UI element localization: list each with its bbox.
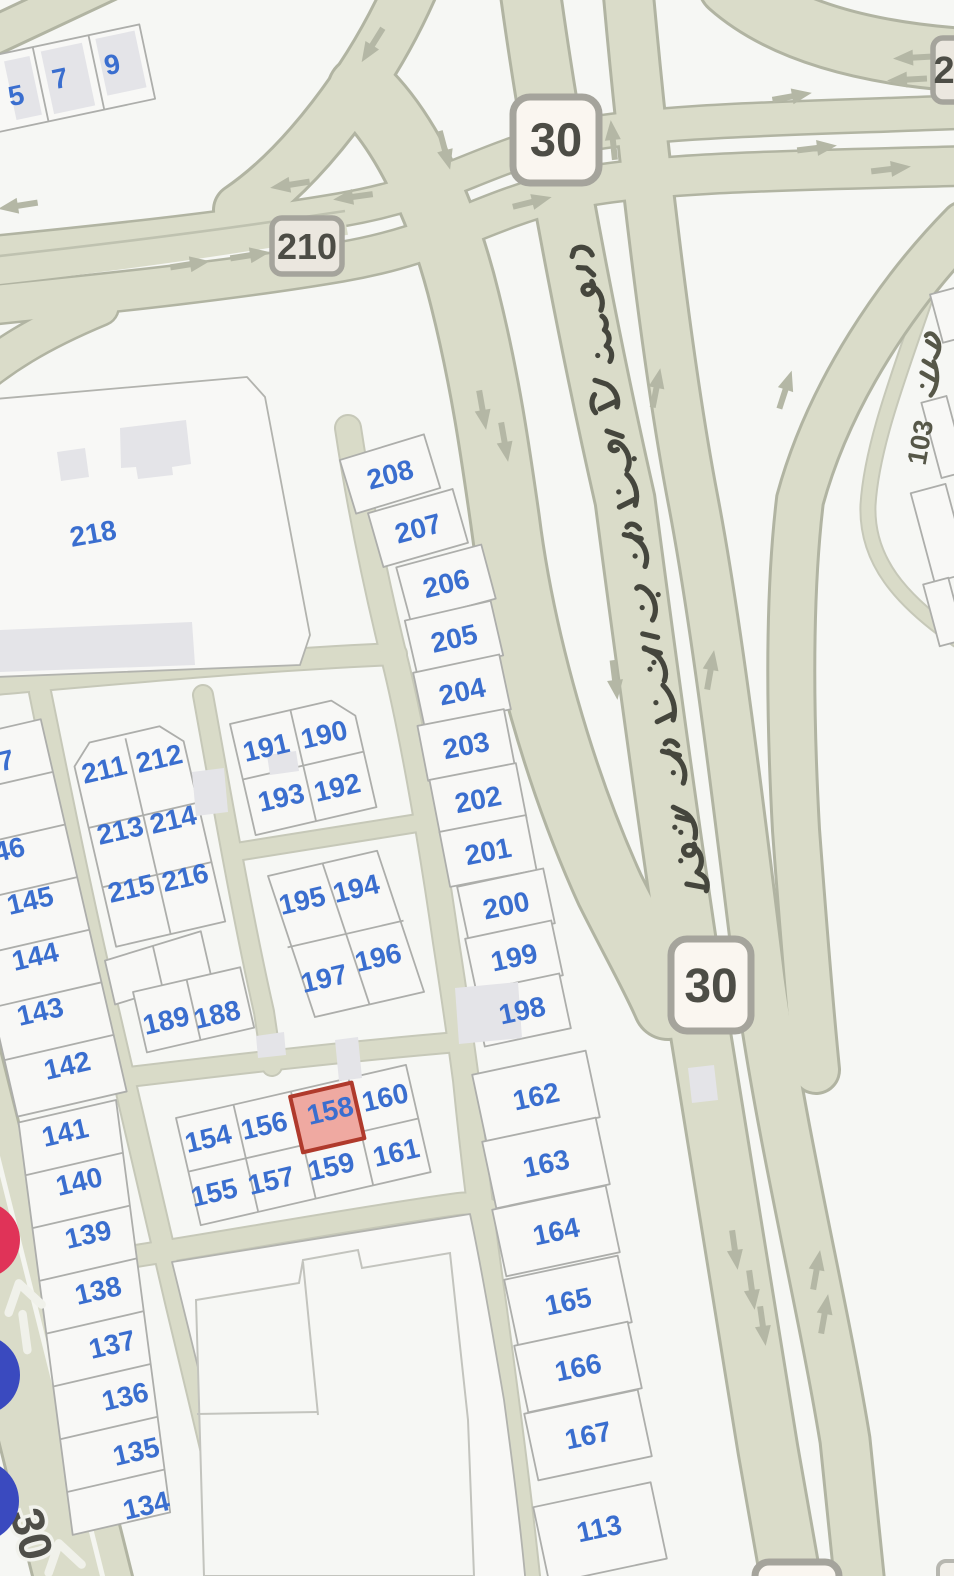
svg-text:30: 30 bbox=[684, 960, 737, 1013]
svg-text:30: 30 bbox=[530, 113, 582, 166]
svg-text:210: 210 bbox=[277, 226, 337, 267]
svg-text:2: 2 bbox=[933, 50, 954, 92]
